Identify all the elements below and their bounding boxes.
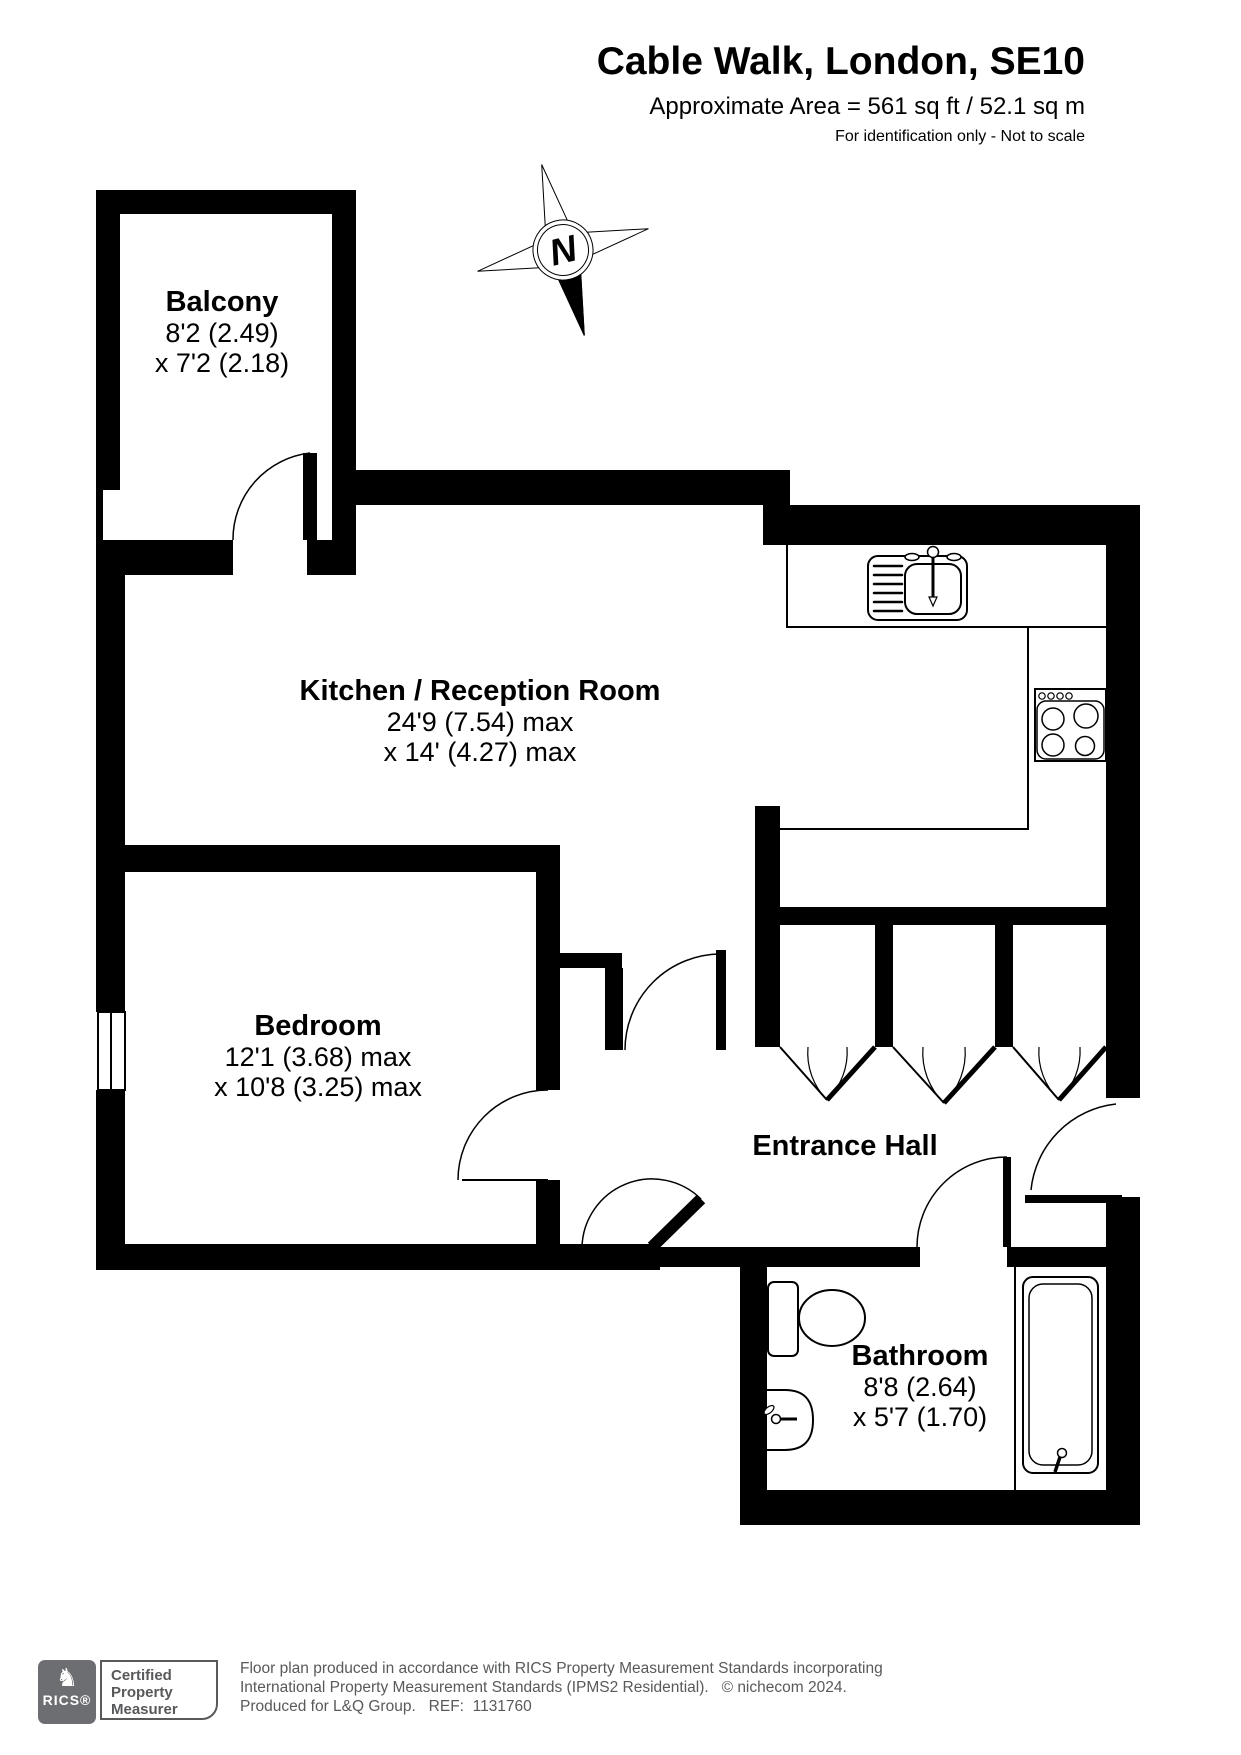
kitchen-door-arc [625, 954, 721, 1050]
basin [762, 1390, 813, 1450]
kitchen-door-leaf [716, 950, 726, 1050]
toilet-bowl [799, 1290, 865, 1346]
wall-left-lower [96, 1090, 125, 1270]
bathtub-inner [1029, 1284, 1092, 1465]
wall-balcony-left [96, 190, 120, 490]
kitchen-dim2: x 14' (4.27) max [300, 737, 661, 767]
kitchen-zone-line [780, 627, 1028, 829]
cupboard1-right-leaf [827, 1047, 875, 1100]
sink-handle-right [947, 554, 961, 561]
wall-bathroom-bottom [740, 1490, 1140, 1525]
badge-line-1: Certified [111, 1667, 216, 1684]
footer-line-2: International Property Measurement Stand… [240, 1678, 883, 1697]
cupboard2-right-arc [923, 1047, 944, 1103]
wall-hall-stub-h [560, 953, 622, 968]
wall-sink [763, 505, 1140, 545]
sink-handle-left [905, 554, 919, 561]
wall-right-upper [1106, 513, 1140, 1098]
hob [1035, 689, 1106, 761]
cupboard3-left-arc [1059, 1047, 1080, 1100]
cupboard3-right-arc [1039, 1047, 1059, 1100]
wall-cupboard-divider-b [995, 925, 1013, 1047]
balcony-door-leaf [303, 453, 317, 540]
compass: N [456, 143, 669, 356]
basin-tap [772, 1415, 781, 1424]
balcony-door-arc [233, 453, 310, 540]
wall-balcony-top [96, 190, 356, 214]
header: Cable Walk, London, SE10 Approximate Are… [597, 40, 1085, 146]
footer-line-1: Floor plan produced in accordance with R… [240, 1659, 883, 1678]
hall-lower-door-leaf [652, 1199, 701, 1247]
front-door-leaf [1025, 1195, 1122, 1203]
certified-measurer-badge: Certified Property Measurer [100, 1660, 218, 1720]
area-line: Approximate Area = 561 sq ft / 52.1 sq m [597, 93, 1085, 121]
front-door-arc [1031, 1104, 1116, 1190]
wall-bathroom-top-right [1007, 1247, 1140, 1267]
bathroom-door-leaf [1003, 1157, 1011, 1247]
bedroom-door-arc [458, 1090, 548, 1180]
rics-lion-icon: ♞ [38, 1663, 96, 1693]
balcony-dim2: x 7'2 (2.18) [155, 348, 289, 378]
wall-cupboard [755, 907, 1106, 925]
footer: ♞ RICS® Certified Property Measurer Floo… [0, 1652, 1241, 1755]
hob-knob-4 [1066, 693, 1072, 699]
wall-left-upper [96, 540, 125, 1012]
wall-bedroom-top [96, 845, 560, 872]
bathroom-door-arc [917, 1157, 1007, 1247]
bedroom-window [94, 1012, 127, 1090]
kitchen-label: Kitchen / Reception Room 24'9 (7.54) max… [300, 675, 661, 767]
wall-bedroom-bottom [96, 1244, 660, 1270]
bedroom-dim1: 12'1 (3.68) max [214, 1042, 422, 1072]
badge-line-3: Measurer [111, 1701, 216, 1718]
hob-knob-3 [1057, 693, 1063, 699]
hob-burner-tr [1074, 704, 1098, 728]
wall-bedroom-right-lower [536, 1180, 560, 1244]
wall-bathroom-left [740, 1247, 767, 1525]
disclaimer: For identification only - Not to scale [597, 128, 1085, 146]
bathroom-label: Bathroom 8'8 (2.64) x 5'7 (1.70) [852, 1340, 989, 1432]
floorplan-drawing: N [0, 0, 1241, 1755]
rics-logo-text: RICS® [38, 1693, 96, 1707]
wall-bedroom-right-upper [536, 845, 560, 1090]
wall-right-lower [1106, 1197, 1140, 1525]
floorplan-page: N Cable Walk, London, SE10 Approximate A… [0, 0, 1241, 1755]
balcony-dim1: 8'2 (2.49) [155, 318, 289, 348]
cupboard3-right-leaf [1059, 1047, 1106, 1100]
walls [96, 190, 1140, 1525]
bathroom-dim1: 8'8 (2.64) [852, 1372, 989, 1402]
bedroom-label: Bedroom 12'1 (3.68) max x 10'8 (3.25) ma… [214, 1010, 422, 1102]
cupboard1-right-arc [808, 1047, 827, 1100]
hob-knob-1 [1039, 693, 1045, 699]
hall-name: Entrance Hall [752, 1130, 937, 1162]
wall-balcony-right [332, 190, 356, 575]
wall-bathroom-top-left [660, 1247, 920, 1267]
kitchen-name: Kitchen / Reception Room [300, 675, 661, 707]
hall-label: Entrance Hall [752, 1130, 937, 1162]
cupboard2-right-leaf [944, 1047, 995, 1103]
sink-tap [928, 547, 939, 558]
bathtub-tap [1058, 1449, 1067, 1458]
wall-hall-stub-v [605, 968, 623, 1050]
hob-knob-2 [1048, 693, 1054, 699]
bathroom-name: Bathroom [852, 1340, 989, 1372]
hob-burner-bl [1042, 734, 1064, 756]
hob-burner-tl [1042, 708, 1064, 730]
bedroom-name: Bedroom [214, 1010, 422, 1042]
toilet-cistern [768, 1282, 798, 1356]
page-title: Cable Walk, London, SE10 [597, 40, 1085, 84]
bathtub [1023, 1277, 1098, 1473]
balcony-label: Balcony 8'2 (2.49) x 7'2 (2.18) [155, 286, 289, 378]
wall-kitchen-top [332, 470, 790, 505]
wall-balcony-left-thin [96, 490, 103, 545]
wall-kitchen-hall-stub [755, 806, 780, 1047]
footer-line-3: Produced for L&Q Group. REF: 1131760 [240, 1697, 883, 1716]
wall-cupboard-divider-a [875, 925, 893, 1047]
footer-text: Floor plan produced in accordance with R… [240, 1659, 883, 1716]
hob-burner-br [1076, 737, 1095, 756]
kitchen-dim1: 24'9 (7.54) max [300, 707, 661, 737]
badge-line-2: Property [111, 1684, 216, 1701]
bedroom-dim2: x 10'8 (3.25) max [214, 1072, 422, 1102]
rics-logo: ♞ RICS® [38, 1660, 96, 1724]
kitchen-sink [868, 547, 967, 621]
bathroom-dim2: x 5'7 (1.70) [852, 1402, 989, 1432]
balcony-name: Balcony [155, 286, 289, 318]
toilet [768, 1282, 865, 1356]
